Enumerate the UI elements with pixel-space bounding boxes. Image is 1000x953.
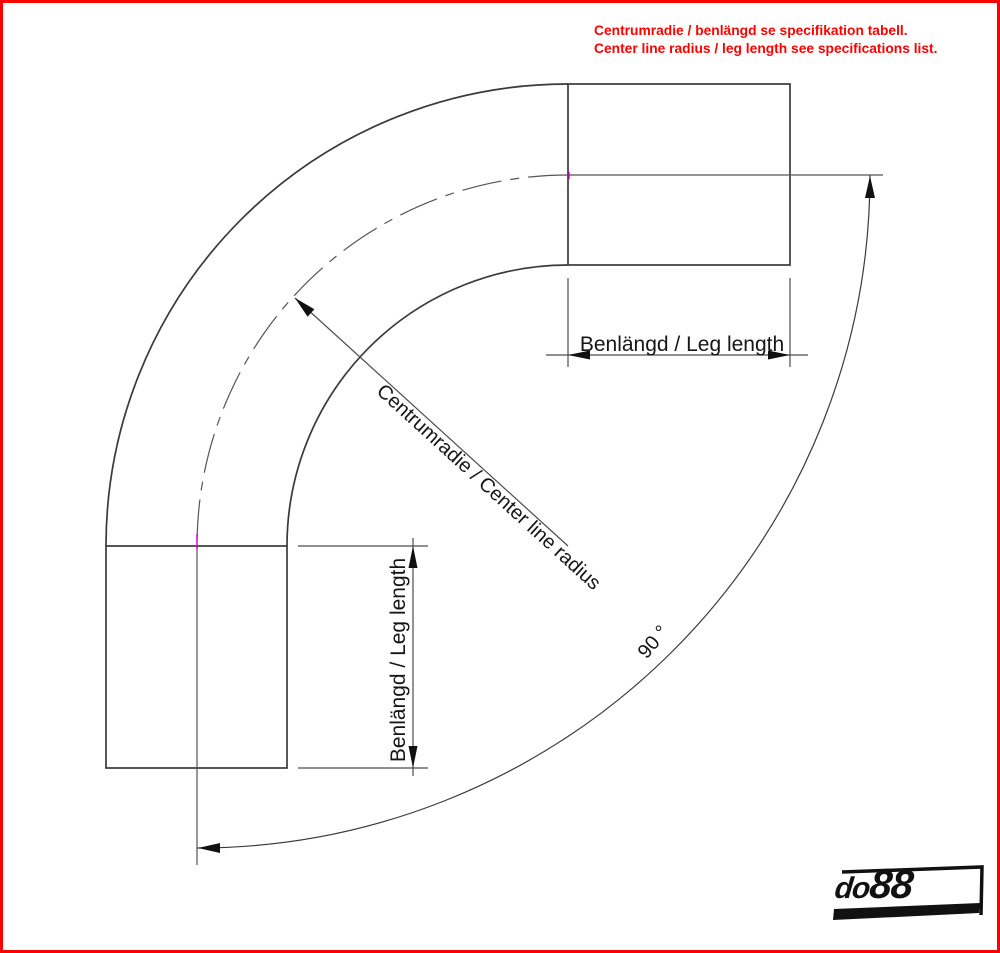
pipe-centerline-arc <box>197 175 568 546</box>
arrowhead-angle-bottom <box>198 843 220 853</box>
leg-length-label-left: Benlängd / Leg length <box>387 549 413 771</box>
do88-logo: do88 <box>828 859 998 944</box>
do88-logo-text: do88 <box>833 864 915 910</box>
drawing-page: { "notes": { "line1_sv": "Centrumradie /… <box>0 0 1000 953</box>
note-swedish: Centrumradie / benlängd se specifikation… <box>594 22 908 40</box>
pipe-inner-arc <box>287 265 568 546</box>
arrowhead-radius-leader <box>295 298 314 317</box>
technical-drawing-canvas <box>3 3 997 950</box>
note-english: Center line radius / leg length see spec… <box>594 40 938 58</box>
logo-text-88: 88 <box>868 863 915 907</box>
angle-dimension-arc <box>197 175 870 848</box>
pipe-outer-arc <box>106 84 568 546</box>
logo-text-do: do <box>833 872 871 905</box>
arrowhead-angle-top <box>865 176 875 198</box>
leg-length-label-top: Benlängd / Leg length <box>571 333 793 357</box>
